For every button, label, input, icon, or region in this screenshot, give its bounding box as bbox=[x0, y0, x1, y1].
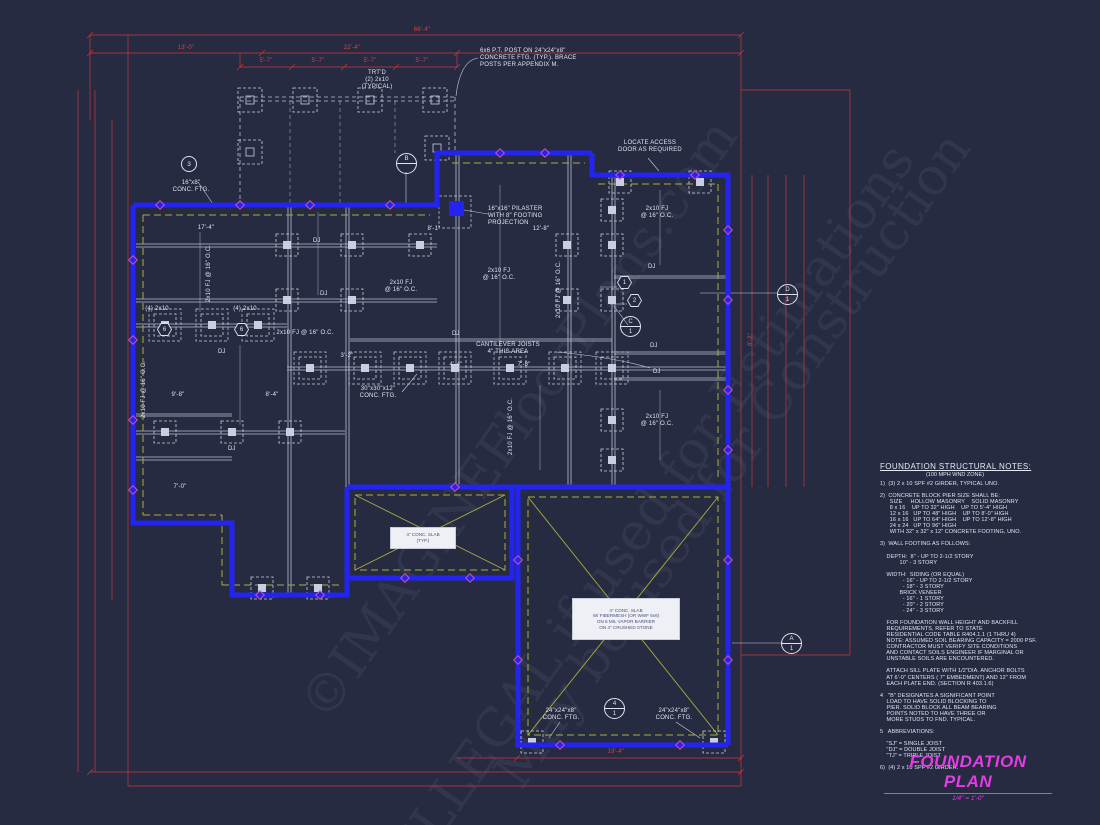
section-sheet bbox=[397, 163, 416, 173]
foundation-walls bbox=[133, 153, 728, 745]
section-letter: A bbox=[782, 634, 801, 643]
dim-overall: 66'-4" bbox=[400, 27, 444, 34]
dim-deck-bay: 5'-7" bbox=[303, 58, 333, 65]
garage-slab-note: 4" CONC. SLAB W/ FIBERMESH (OR WWF 6x6) … bbox=[572, 598, 680, 640]
structural-notes: FOUNDATION STRUCTURAL NOTES: (100 MPH WN… bbox=[880, 462, 1070, 771]
girder-label: (4) 2x10 bbox=[134, 306, 180, 313]
dim-label: 7'-0" bbox=[166, 484, 194, 491]
dim-label: 17'-4" bbox=[186, 225, 226, 232]
section-marker-4: 4 1 bbox=[604, 698, 625, 719]
joist-label: 2x10 FJ @ 16" O.C. bbox=[478, 268, 520, 282]
framing-lines bbox=[136, 97, 726, 595]
footing-24-note-left: 24"x24"x8" CONC. FTG. bbox=[535, 708, 587, 722]
sheet-scale: 1/4" = 1'-0" bbox=[884, 795, 1052, 802]
dim-label: 9'-8" bbox=[162, 392, 194, 399]
section-letter: D bbox=[778, 285, 797, 294]
joist-label: 2x10 FJ @ 16" O.C. bbox=[380, 280, 422, 294]
section-letter: C bbox=[621, 317, 640, 326]
callout-note-3: 3 bbox=[181, 156, 197, 172]
double-joist-label: DJ bbox=[313, 238, 320, 244]
double-joist-label: DJ bbox=[218, 349, 225, 355]
joist-label: 2x10 FJ @ 16" O.C. bbox=[262, 330, 348, 337]
notes-subtitle: (100 MPH WND ZONE) bbox=[880, 472, 1030, 478]
section-sheet: 1 bbox=[621, 326, 640, 336]
dim-label: 4'-4" bbox=[442, 362, 470, 369]
section-marker-d: D 1 bbox=[777, 284, 798, 305]
dim-label: 3'-2" bbox=[334, 353, 360, 360]
sheet-title-block: FOUNDATION PLAN 1/4" = 1'-0" bbox=[884, 752, 1052, 802]
dim-label: 12'-8" bbox=[522, 226, 560, 233]
double-joist-label: DJ bbox=[320, 291, 327, 297]
dim-garage-width: 19'-4" bbox=[596, 749, 636, 756]
post-note: 6x6 P.T. POST ON 24"x24"x8" CONCRETE FTG… bbox=[480, 48, 577, 69]
joist-label-vertical: 2x10 FJ @ 16" O.C. bbox=[508, 398, 515, 455]
section-marker-a: A 1 bbox=[781, 633, 802, 654]
footing-16x8-note: 16"x8" CONC. FTG. bbox=[166, 180, 216, 194]
dim-deck-bay: 5'-7" bbox=[407, 58, 437, 65]
deck-beam-note: TRT'D (2) 2x10 (TYPICAL) bbox=[350, 70, 404, 91]
double-joist-label: DJ bbox=[228, 446, 235, 452]
double-joist-label: DJ bbox=[648, 264, 655, 270]
wall-anchor-marks bbox=[129, 149, 732, 749]
section-marker-b: B bbox=[396, 153, 417, 174]
callout-note-6b-text: 6 bbox=[235, 324, 248, 335]
porch-slab-note: 4" CONC. SLAB (TYP.) bbox=[390, 527, 456, 549]
dim-right-bay: 8'-2" bbox=[748, 333, 755, 346]
notes-body: 1) (3) 2 x 10 SPF #2 GIRDER, TYPICAL UNO… bbox=[880, 481, 1070, 771]
sheet-title: FOUNDATION PLAN bbox=[884, 752, 1052, 794]
joist-label-vertical: 2x10 FJ @ 16" O.C. bbox=[141, 361, 148, 418]
joist-label-vertical: 2x10 FJ @ 16" O.C. bbox=[206, 245, 213, 302]
callout-note-6-text: 6 bbox=[158, 324, 171, 335]
joist-label: 2x10 FJ @ 16" O.C. bbox=[636, 414, 678, 428]
dim-top-mid: 22'-4" bbox=[332, 45, 372, 52]
dim-top-left: 13'-0" bbox=[166, 45, 206, 52]
callout-note-1-text: 1 bbox=[618, 277, 631, 288]
dim-label: 8'-4" bbox=[256, 392, 288, 399]
double-joist-label: DJ bbox=[653, 369, 660, 375]
girder-label: (4) 2x10 bbox=[222, 306, 268, 313]
joist-label: 2x10 FJ @ 16" O.C. bbox=[636, 206, 678, 220]
section-sheet: 1 bbox=[778, 294, 797, 304]
callout-note-2-text: 2 bbox=[628, 295, 641, 306]
notes-title: FOUNDATION STRUCTURAL NOTES: bbox=[880, 462, 1070, 471]
section-sheet: 1 bbox=[782, 643, 801, 653]
joist-label-vertical: 2x10 FJ @ 16" O.C. bbox=[556, 261, 563, 318]
footing-30-note: 30"x30"x12" CONC. FTG. bbox=[350, 386, 406, 400]
cantilever-note: CANTILEVER JOISTS 4" THIS AREA bbox=[460, 342, 556, 356]
access-door-note: LOCATE ACCESS DOOR AS REQUIRED bbox=[598, 140, 702, 154]
section-letter: 4 bbox=[605, 699, 624, 708]
dim-label: 7'-8" bbox=[510, 362, 538, 369]
footing-24-note-right: 24"x24"x8" CONC. FTG. bbox=[648, 708, 700, 722]
double-joist-label: DJ bbox=[650, 343, 657, 349]
section-sheet: 1 bbox=[605, 708, 624, 718]
dim-deck-bay: 5'-7" bbox=[355, 58, 385, 65]
dim-label: 8'-1" bbox=[418, 226, 450, 233]
dimension-lines bbox=[78, 32, 850, 786]
section-marker-c: C 1 bbox=[620, 316, 641, 337]
section-letter: B bbox=[397, 154, 416, 163]
pilaster-note: 16"x16" PILASTER WITH 8" FOOTING PROJECT… bbox=[488, 206, 542, 227]
double-joist-label: DJ bbox=[452, 331, 459, 337]
dim-deck-bay: 5'-7" bbox=[251, 58, 281, 65]
foundation-plan-sheet: ©IMAGINEFloorPlans.com ILLEGAL if used f… bbox=[0, 0, 1100, 825]
